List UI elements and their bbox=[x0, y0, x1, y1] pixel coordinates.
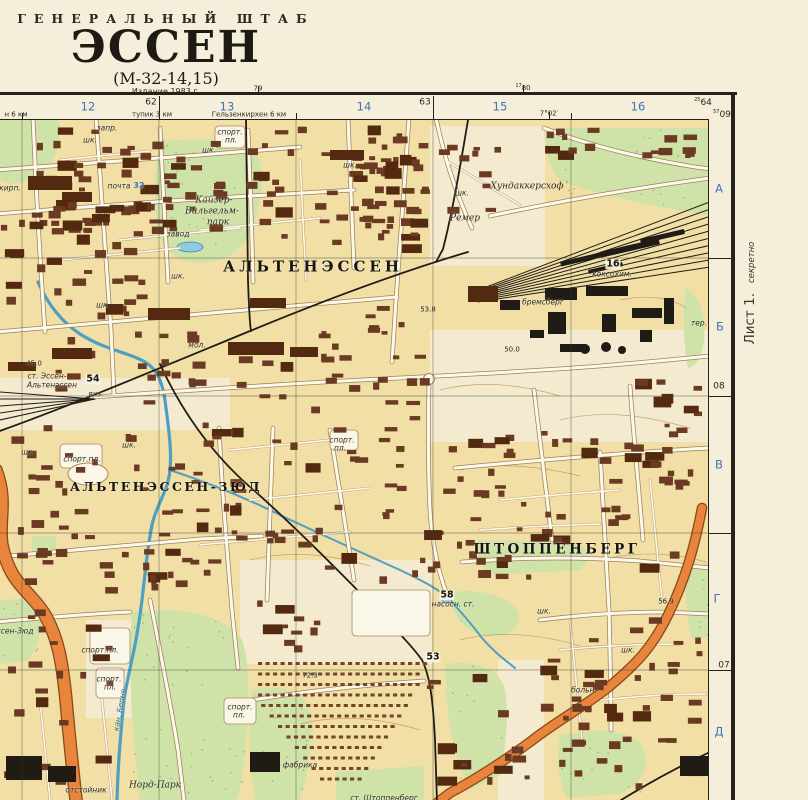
secrecy-note: Лист 1. секретно bbox=[742, 242, 758, 345]
map-label: н 6 км bbox=[5, 112, 28, 119]
sheet-code: (М-32-14,15) bbox=[0, 69, 332, 88]
map-canvas bbox=[0, 120, 708, 800]
page-title: ЭССЕН bbox=[0, 22, 332, 73]
map-label: 2564 bbox=[694, 98, 712, 108]
map-label: 7°02′ bbox=[540, 111, 558, 118]
map-label: Д bbox=[715, 726, 724, 738]
map-label: А bbox=[715, 183, 723, 195]
grid-tick bbox=[159, 96, 160, 120]
map-label: 16 bbox=[631, 101, 646, 113]
map-sheet: ГЕНЕРАЛЬНЫЙ ШТАБ ЭССЕН (М-32-14,15) Изда… bbox=[0, 0, 808, 800]
map-label: 5709 bbox=[713, 110, 731, 120]
map-label: 62 bbox=[145, 99, 156, 108]
map-label: 63 bbox=[419, 99, 430, 108]
map-label: 14 bbox=[357, 101, 372, 113]
map-label: 13 bbox=[220, 101, 235, 113]
map-label: тупик 3 км bbox=[132, 112, 172, 119]
map-label: В bbox=[715, 459, 723, 471]
map-label: 1780 bbox=[515, 84, 530, 92]
outer-border-right bbox=[731, 92, 735, 800]
map-label: 15 bbox=[493, 101, 508, 113]
grid-tick bbox=[708, 670, 731, 671]
outer-border-top bbox=[0, 92, 737, 95]
sheet-number: Лист 1. bbox=[742, 293, 758, 344]
grid-tick bbox=[523, 85, 524, 92]
map-label: 12 bbox=[81, 101, 96, 113]
grid-tick bbox=[433, 96, 434, 120]
map-label: Гельзенкирхен 6 км bbox=[212, 112, 286, 119]
grid-tick bbox=[708, 258, 731, 259]
map-label: 07 bbox=[718, 662, 729, 671]
secrecy-stamp: секретно bbox=[747, 242, 757, 283]
inner-border-right bbox=[708, 119, 709, 800]
inner-border-top bbox=[0, 119, 709, 120]
map-label: Г bbox=[713, 593, 720, 605]
map-label: 08 bbox=[713, 383, 724, 392]
grid-tick bbox=[708, 396, 731, 397]
grid-tick bbox=[708, 533, 731, 534]
map-label: Б bbox=[716, 321, 724, 333]
